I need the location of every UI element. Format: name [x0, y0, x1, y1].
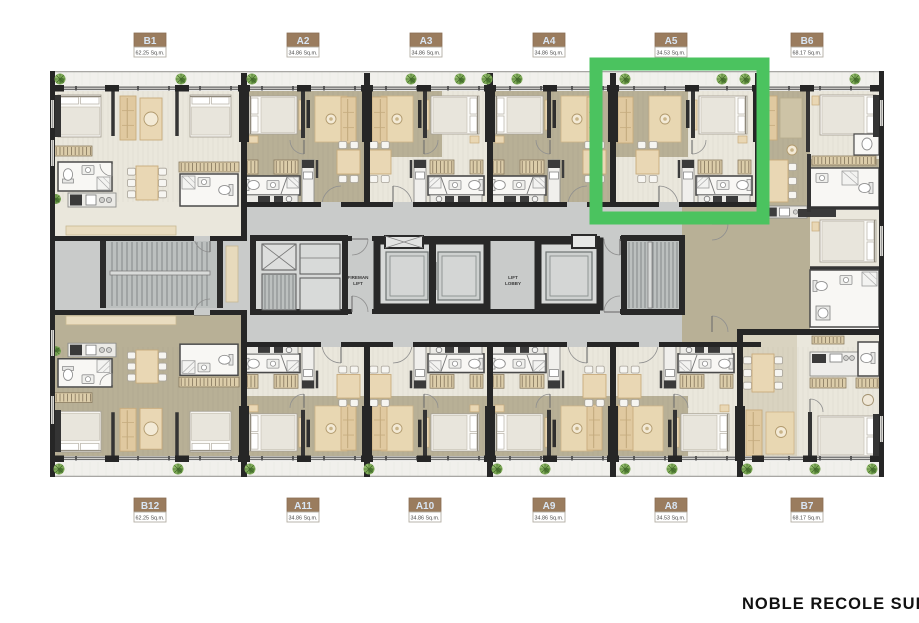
svg-text:B6: B6 [801, 36, 814, 47]
svg-text:A11: A11 [294, 501, 312, 512]
svg-text:A10: A10 [416, 501, 435, 512]
svg-text:A9: A9 [543, 501, 556, 512]
svg-text:A2: A2 [297, 36, 310, 47]
svg-text:62.25 Sq.m.: 62.25 Sq.m. [135, 51, 164, 57]
svg-text:A8: A8 [665, 501, 678, 512]
svg-text:LOBBY: LOBBY [505, 281, 521, 286]
svg-text:34.53 Sq.m.: 34.53 Sq.m. [656, 51, 685, 57]
svg-text:NOBLE RECOLE SUKHUMVIT 19: NOBLE RECOLE SUKHUMVIT 19 [742, 595, 919, 613]
svg-text:34.86 Sq.m.: 34.86 Sq.m. [411, 51, 440, 57]
svg-text:LIFT: LIFT [508, 275, 518, 280]
svg-text:A3: A3 [420, 36, 433, 47]
svg-text:34.86 Sq.m.: 34.86 Sq.m. [288, 51, 317, 57]
svg-text:34.53 Sq.m.: 34.53 Sq.m. [656, 516, 685, 522]
svg-text:FIREMAN: FIREMAN [348, 275, 370, 280]
svg-text:A5: A5 [665, 36, 678, 47]
svg-text:34.86 Sq.m.: 34.86 Sq.m. [410, 516, 439, 522]
svg-text:B7: B7 [801, 501, 814, 512]
svg-text:62.25 Sq.m.: 62.25 Sq.m. [135, 516, 164, 522]
svg-text:34.86 Sq.m.: 34.86 Sq.m. [534, 516, 563, 522]
svg-text:A4: A4 [543, 36, 556, 47]
svg-text:B12: B12 [141, 501, 160, 512]
svg-text:B1: B1 [144, 36, 157, 47]
svg-text:LIFT: LIFT [353, 281, 363, 286]
svg-text:68.17 Sq.m.: 68.17 Sq.m. [792, 51, 821, 57]
svg-text:34.86 Sq.m.: 34.86 Sq.m. [288, 516, 317, 522]
svg-text:34.86 Sq.m.: 34.86 Sq.m. [534, 51, 563, 57]
svg-text:68.17 Sq.m.: 68.17 Sq.m. [792, 516, 821, 522]
